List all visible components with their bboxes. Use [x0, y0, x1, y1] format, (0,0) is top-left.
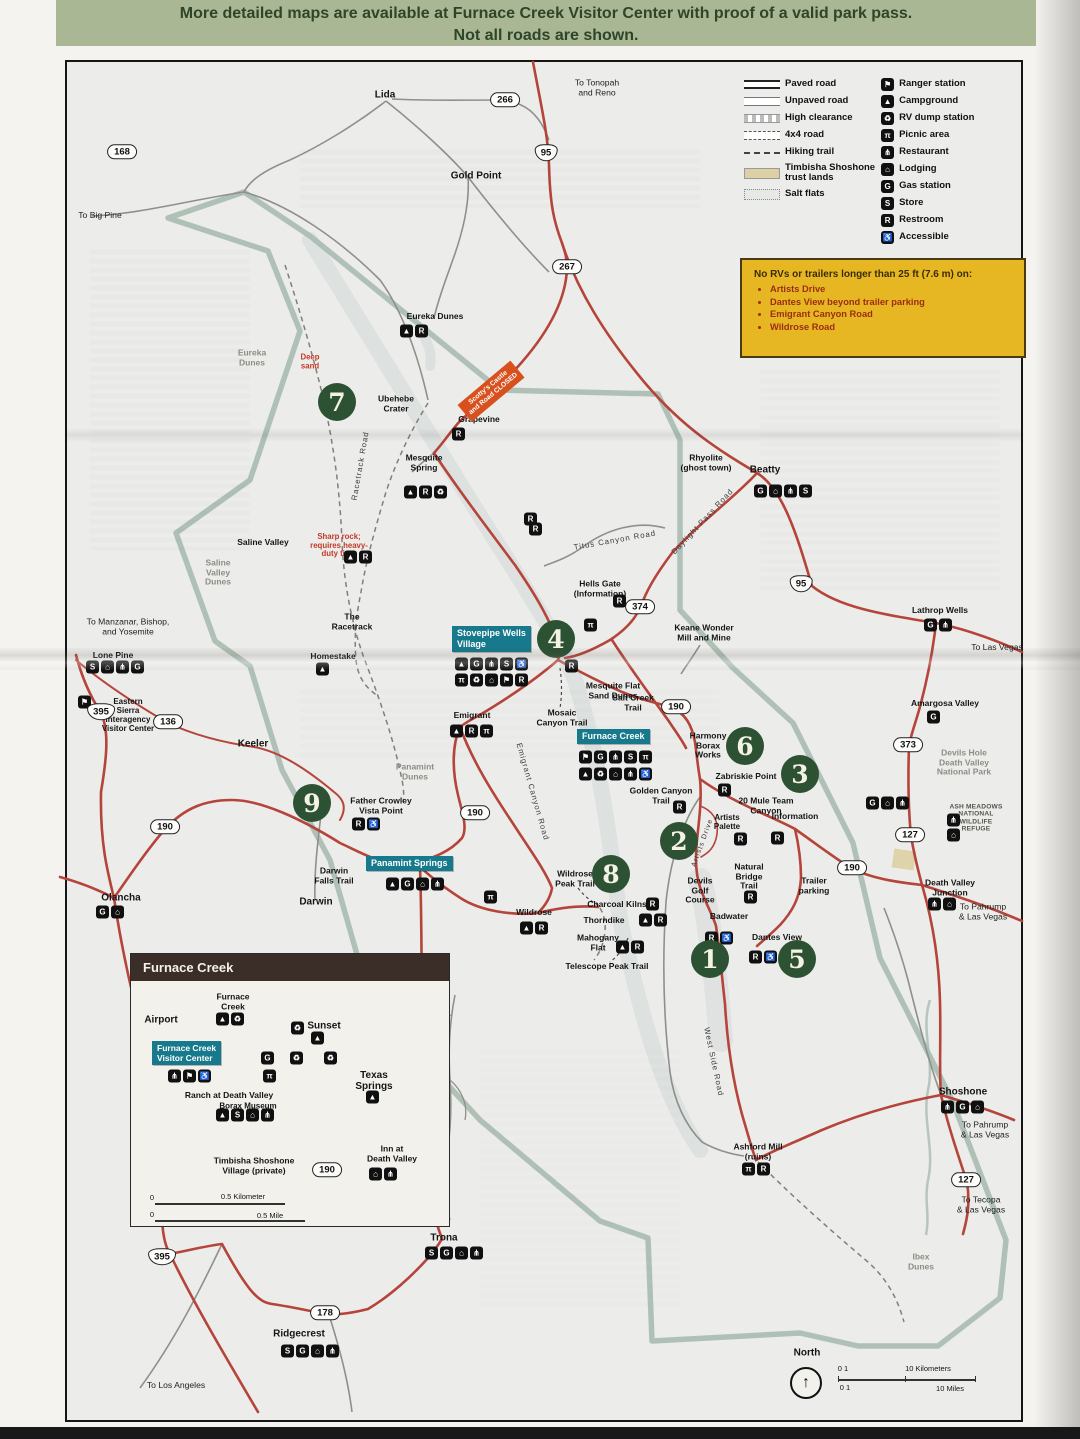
facility-icon-row: G — [927, 711, 940, 724]
facility-icon-row: ▲R — [639, 914, 667, 927]
numbered-stop-9: 9 — [293, 784, 331, 822]
restroom-icon: R — [757, 1163, 770, 1176]
rv-dump-station-icon: ♻ — [324, 1052, 337, 1065]
north-arrow-glyph: ↑ — [802, 1374, 810, 1392]
map-label-charcoal-kilns: Charcoal Kilns — [587, 900, 647, 910]
restaurant-icon: ⋔ — [261, 1109, 274, 1122]
route-shield-395: 395 — [148, 1248, 176, 1265]
numbered-stop-3: 3 — [781, 755, 819, 793]
map-label-mahogany-flat: Mahogany Flat — [577, 933, 619, 952]
picnic-area-icon: π — [742, 1163, 755, 1176]
map-label-mesquite-spring: Mesquite Spring — [406, 453, 443, 472]
scale-tick — [975, 1376, 976, 1382]
map-label-information: Information — [772, 812, 819, 822]
restaurant-icon: ⋔ — [384, 1168, 397, 1181]
map-label-to-tecopa-las-vegas: To Tecopa & Las Vegas — [957, 1195, 1005, 1214]
numbered-stop-2: 2 — [660, 822, 698, 860]
route-shield-373: 373 — [893, 737, 923, 752]
restroom-icon: R — [646, 898, 659, 911]
scottys-castle-closed-banner: Scotty's Castle and Road CLOSED — [458, 360, 525, 421]
numbered-stop-1: 1 — [691, 940, 729, 978]
facility-icon-row: ♻ — [291, 1022, 304, 1035]
restroom-icon: R — [419, 486, 432, 499]
facility-icon-row: ⌂⋔ — [369, 1168, 397, 1181]
facility-icon-row: ▲R — [520, 922, 548, 935]
numbered-stop-8: 8 — [592, 855, 630, 893]
lodging-icon: ⌂ — [111, 906, 124, 919]
print-bleedthrough — [480, 1050, 680, 1310]
scale-tick — [905, 1376, 906, 1382]
lodging-icon: ⌂ — [971, 1101, 984, 1114]
map-label-timbisha-shoshone-village-priv: Timbisha Shoshone Village (private) — [214, 1156, 295, 1175]
print-bleedthrough — [90, 250, 250, 550]
facility-icon-row: R — [529, 523, 542, 536]
gas-station-icon: G — [261, 1052, 274, 1065]
restaurant-icon: ⋔ — [947, 814, 960, 827]
map-label-wildrose: Wildrose — [516, 908, 552, 918]
map-label-ridgecrest: Ridgecrest — [273, 1328, 325, 1339]
facility-icon-row: ▲♻⌂⋔♿ — [579, 768, 652, 781]
map-label-to-manzanar-bishop-and-yosemit: To Manzanar, Bishop, and Yosemite — [87, 617, 170, 636]
route-shield-127: 127 — [951, 1172, 981, 1187]
facility-icon-row: ▲R♻ — [404, 486, 447, 499]
gas-station-icon: G — [96, 906, 109, 919]
restroom-icon: R — [535, 922, 548, 935]
map-label-grapevine: Grapevine — [458, 415, 500, 425]
route-shield-190: 190 — [837, 860, 867, 875]
campground-icon: ▲ — [639, 914, 652, 927]
facility-icon-row: ⌂ — [947, 829, 960, 842]
facility-icon-row: ⋔ — [947, 814, 960, 827]
restaurant-icon: ⋔ — [624, 768, 637, 781]
map-label-badwater: Badwater — [710, 912, 748, 922]
facility-icon-row: ▲G⌂⋔ — [386, 878, 444, 891]
route-shield-136: 136 — [153, 714, 183, 729]
map-label-to-big-pine: To Big Pine — [78, 211, 121, 221]
map-label-titus-canyon-road: Titus Canyon Road — [573, 529, 657, 552]
map-label-the-racetrack: The Racetrack — [332, 612, 373, 631]
facility-icon-row: ▲ — [311, 1032, 324, 1045]
facility-icon-row: R♿ — [749, 951, 777, 964]
map-label-keane-wonder-mill-and-mine: Keane Wonder Mill and Mine — [674, 623, 733, 642]
gas-station-icon: G — [440, 1247, 453, 1260]
accessible-icon: ♿ — [367, 818, 380, 831]
map-label-texas-springs: Texas Springs — [355, 1070, 392, 1092]
lodging-icon: ⌂ — [455, 1247, 468, 1260]
map-label-airport: Airport — [144, 1014, 177, 1025]
scale-miles-label: 10 Miles — [936, 1385, 964, 1393]
restaurant-icon: ⋔ — [326, 1345, 339, 1358]
map-label-to-los-angeles: To Los Angeles — [147, 1381, 205, 1391]
map-label-devils-golf-course: Devils Golf Course — [685, 877, 714, 906]
campground-icon: ▲ — [520, 922, 533, 935]
route-shield-267: 267 — [552, 259, 582, 274]
map-label-shoshone: Shoshone — [939, 1086, 987, 1097]
map-label-amargosa-valley: Amargosa Valley — [911, 699, 979, 709]
map-label-zabriskie-point: Zabriskie Point — [716, 772, 777, 782]
map-label-to-pahrump-las-vegas: To Pahrump & Las Vegas — [959, 902, 1007, 921]
lodging-icon: ⌂ — [416, 878, 429, 891]
picnic-area-icon: π — [584, 619, 597, 632]
restaurant-icon: ⋔ — [928, 898, 941, 911]
restroom-icon: R — [718, 784, 731, 797]
main-scalebar — [838, 1379, 975, 1381]
map-label-rhyolite-ghost-town: Rhyolite (ghost town) — [681, 453, 732, 472]
print-bleedthrough — [760, 370, 1000, 590]
route-shield-374: 374 — [625, 599, 655, 614]
campground-icon: ▲ — [616, 941, 629, 954]
restaurant-icon: ⋔ — [431, 878, 444, 891]
store-icon: S — [281, 1345, 294, 1358]
lodging-icon: ⌂ — [369, 1168, 382, 1181]
facility-icon-row: ▲S⌂⋔ — [216, 1109, 274, 1122]
facility-icon-row: ⋔⌂ — [928, 898, 956, 911]
map-label-trailer-parking: Trailer parking — [799, 876, 830, 895]
north-label: North — [794, 1347, 821, 1358]
lodging-icon: ⌂ — [311, 1345, 324, 1358]
map-label-thorndike: Thorndike — [583, 916, 624, 926]
facility-icon-row: G⋔ — [924, 619, 952, 632]
route-shield-190: 190 — [312, 1162, 342, 1177]
restroom-icon: R — [359, 551, 372, 564]
lodging-icon: ⌂ — [609, 768, 622, 781]
map-label-furnace-creek: Furnace Creek — [216, 992, 249, 1011]
map-label-telescope-peak-trail: Telescope Peak Trail — [566, 962, 649, 972]
facility-icon-row: R♿ — [352, 818, 380, 831]
map-label-death-valley-junction: Death Valley Junction — [925, 878, 975, 897]
map-label-eureka-dunes: Eureka Dunes — [407, 312, 464, 322]
rv-dump-station-icon: ♻ — [470, 674, 483, 687]
facility-icon-row: R — [673, 801, 686, 814]
facility-icon-row: R — [646, 898, 659, 911]
facility-icon-row: SG⌂⋔ — [425, 1247, 483, 1260]
rv-dump-station-icon: ♻ — [291, 1022, 304, 1035]
accessible-icon: ♿ — [764, 951, 777, 964]
restroom-icon: R — [654, 914, 667, 927]
gas-station-icon: G — [401, 878, 414, 891]
map-label-0: 0 — [150, 1194, 154, 1202]
gas-station-icon: G — [927, 711, 940, 724]
restaurant-icon: ⋔ — [941, 1101, 954, 1114]
facility-icon-row: ▲R — [616, 941, 644, 954]
lodging-icon: ⌂ — [246, 1109, 259, 1122]
rv-dump-station-icon: ♻ — [594, 768, 607, 781]
restaurant-icon: ⋔ — [939, 619, 952, 632]
picnic-area-icon: π — [484, 891, 497, 904]
ranger-station-icon: ⚑ — [500, 674, 513, 687]
campground-icon: ▲ — [366, 1091, 379, 1104]
route-shield-127: 127 — [895, 827, 925, 842]
facility-icon-row: R — [613, 595, 626, 608]
map-label-ashford-mill-ruins: Ashford Mill (ruins) — [733, 1142, 782, 1161]
restaurant-icon: ⋔ — [896, 797, 909, 810]
route-shield-168: 168 — [107, 144, 137, 159]
scale-tick — [838, 1376, 839, 1382]
campground-icon: ▲ — [311, 1032, 324, 1045]
campground-icon: ▲ — [216, 1109, 229, 1122]
map-label-trona: Trona — [430, 1232, 457, 1243]
numbered-stop-5: 5 — [778, 940, 816, 978]
store-icon: S — [425, 1247, 438, 1260]
lodging-icon: ⌂ — [943, 898, 956, 911]
map-label-0-5-kilometer: 0.5 Kilometer — [221, 1193, 265, 1201]
rv-dump-station-icon: ♻ — [434, 486, 447, 499]
facility-icon-row: ▲R — [400, 325, 428, 338]
map-label-darwin-falls-trail: Darwin Falls Trail — [314, 866, 353, 885]
accessible-icon: ♿ — [639, 768, 652, 781]
facility-icon-row: ▲R — [344, 551, 372, 564]
restroom-icon: R — [749, 951, 762, 964]
map-label-father-crowley-vista-point: Father Crowley Vista Point — [350, 796, 411, 815]
map-label-wildrose-peak-trail: Wildrose Peak Trail — [555, 869, 595, 888]
print-bleedthrough — [300, 150, 700, 210]
facility-icon-row: R — [734, 833, 747, 846]
north-arrow-icon: ↑ — [790, 1367, 822, 1399]
rv-dump-station-icon: ♻ — [290, 1052, 303, 1065]
facility-icon-row: π — [484, 891, 497, 904]
facility-icon-row: G⌂⋔ — [866, 797, 909, 810]
restroom-icon: R — [352, 818, 365, 831]
fold-crease-strong — [0, 648, 1080, 670]
facility-icon-row: ♻ — [290, 1052, 303, 1065]
numbered-stop-7: 7 — [318, 383, 356, 421]
map-label-west-side-road: West Side Road — [701, 1027, 724, 1097]
restroom-icon: R — [613, 595, 626, 608]
accessible-icon: ♿ — [198, 1070, 211, 1083]
campground-icon: ▲ — [404, 486, 417, 499]
map-label-artists-palette: Artists Palette — [714, 814, 740, 832]
map-label-0: 0 — [150, 1211, 154, 1219]
campground-icon: ▲ — [400, 325, 413, 338]
facility-icon-row: ▲ — [366, 1091, 379, 1104]
restroom-icon: R — [744, 891, 757, 904]
gas-station-icon: G — [956, 1101, 969, 1114]
map-label-daylight-pass-road: Daylight Pass Road — [670, 487, 735, 556]
map-label-0-5-mile: 0.5 Mile — [257, 1212, 283, 1220]
map-label-ubehebe-crater: Ubehebe Crater — [378, 394, 414, 413]
campground-icon: ▲ — [579, 768, 592, 781]
restroom-icon: R — [673, 801, 686, 814]
facility-icon-row: π — [584, 619, 597, 632]
facility-icon-row: G⌂ — [96, 906, 124, 919]
map-label-ranch-at-death-valley: Ranch at Death Valley — [185, 1091, 273, 1101]
facility-icon-row: πR — [742, 1163, 770, 1176]
campground-icon: ▲ — [216, 1013, 229, 1026]
facility-icon-row: ▲♻ — [216, 1013, 244, 1026]
lodging-icon: ⌂ — [881, 797, 894, 810]
map-label-devils-hole-death-valley-natio: Devils Hole Death Valley National Park — [937, 749, 991, 778]
map-label-olancha: Olancha — [101, 892, 140, 903]
restroom-icon: R — [631, 941, 644, 954]
facility-icon-row: π♻⌂⚑R — [455, 674, 528, 687]
restroom-icon: R — [771, 832, 784, 845]
page-edge-shadow — [1034, 0, 1080, 1439]
settlement-flag-panamint-springs: Panamint Springs — [366, 856, 453, 871]
campground-icon: ▲ — [386, 878, 399, 891]
facility-icon-row: ⋔⚑♿ — [168, 1070, 211, 1083]
map-label-saline-valley-dunes: Saline Valley Dunes — [205, 559, 231, 588]
print-bleedthrough — [300, 690, 720, 760]
facility-icon-row: R — [771, 832, 784, 845]
route-shield-178: 178 — [310, 1305, 340, 1320]
rv-dump-station-icon: ♻ — [231, 1013, 244, 1026]
facility-icon-row: ⋔G⌂ — [941, 1101, 984, 1114]
facility-icon-row: G — [261, 1052, 274, 1065]
gas-station-icon: G — [296, 1345, 309, 1358]
scale-zero-bottom: 0 1 — [840, 1384, 850, 1392]
map-label-to-pahrump-las-vegas: To Pahrump & Las Vegas — [961, 1120, 1009, 1139]
map-label-darwin: Darwin — [299, 896, 332, 907]
route-shield-190: 190 — [460, 805, 490, 820]
facility-icon-row: R — [718, 784, 731, 797]
map-label-lathrop-wells: Lathrop Wells — [912, 606, 968, 616]
facility-icon-row: ♻ — [324, 1052, 337, 1065]
map-label-panamint-dunes: Panamint Dunes — [396, 762, 434, 781]
restroom-icon: R — [515, 674, 528, 687]
map-label-inn-at-death-valley: Inn at Death Valley — [367, 1144, 417, 1163]
restroom-icon: R — [415, 325, 428, 338]
photo-bottom-edge — [0, 1427, 1080, 1439]
map-label-sunset: Sunset — [307, 1020, 340, 1031]
scale-zero-top: 0 1 — [838, 1365, 848, 1373]
picnic-area-icon: π — [263, 1070, 276, 1083]
ranger-station-icon: ⚑ — [183, 1070, 196, 1083]
map-label-lida: Lida — [375, 89, 396, 100]
map-label-to-tonopah-and-reno: To Tonopah and Reno — [575, 78, 619, 97]
route-shield-190: 190 — [150, 819, 180, 834]
map-label-keeler: Keeler — [238, 738, 269, 749]
numbered-stop-6: 6 — [726, 727, 764, 765]
lodging-icon: ⌂ — [947, 829, 960, 842]
restroom-icon: R — [734, 833, 747, 846]
facility-icon-row: SG⌂⋔ — [281, 1345, 339, 1358]
gas-station-icon: G — [924, 619, 937, 632]
accessible-icon: ♿ — [720, 932, 733, 945]
scale-km-label: 10 Kilometers — [905, 1365, 951, 1373]
route-shield-266: 266 — [490, 92, 520, 107]
facility-icon-row: π — [263, 1070, 276, 1083]
store-icon: S — [231, 1109, 244, 1122]
facility-icon-row: R — [744, 891, 757, 904]
lodging-icon: ⌂ — [485, 674, 498, 687]
map-label-ibex-dunes: Ibex Dunes — [908, 1252, 934, 1271]
visitor-center-flag: Furnace Creek Visitor Center — [152, 1041, 221, 1065]
map-label-natural-bridge-trail: Natural Bridge Trail — [734, 863, 763, 892]
restroom-icon: R — [529, 523, 542, 536]
campground-icon: ▲ — [344, 551, 357, 564]
restaurant-icon: ⋔ — [168, 1070, 181, 1083]
map-label-deep-sand: Deep sand — [300, 353, 319, 370]
picnic-area-icon: π — [455, 674, 468, 687]
gas-station-icon: G — [866, 797, 879, 810]
